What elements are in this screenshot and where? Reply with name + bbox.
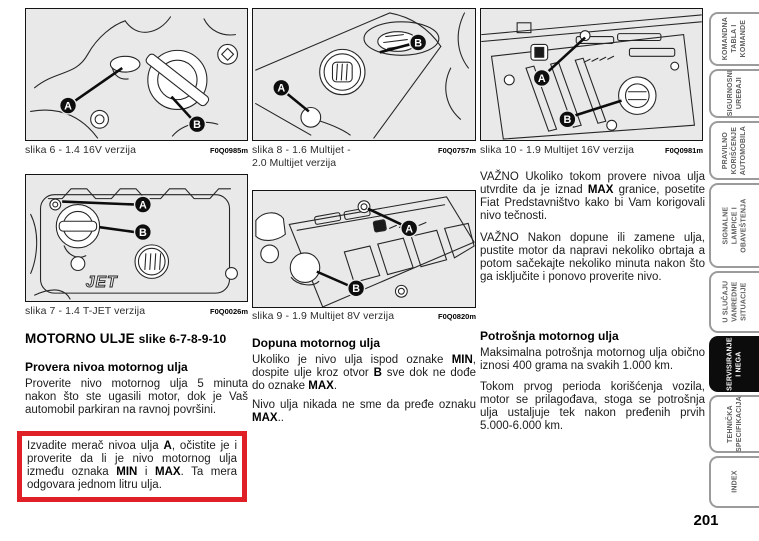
svg-text:A: A: [405, 223, 413, 235]
figure-caption: slika 6 - 1.4 16V verzija F0Q0985m: [25, 144, 248, 156]
sidebar-tab-signalne-lampice: SIGNALNE LAMPICE I OBAVEŠTENJA: [709, 183, 759, 268]
sidebar-tab-label: INDEX: [730, 471, 739, 493]
marker-a-icon: A: [533, 70, 550, 87]
marker-a-icon: A: [135, 196, 152, 213]
paragraph-important-1: VAŽNO Ukoliko tokom provere nivoa ulja u…: [480, 171, 705, 223]
engine-cover-label: JET: [86, 274, 118, 291]
paragraph-refill-1: Ukoliko je nivo ulja ispod oznake MIN, d…: [252, 354, 476, 393]
paragraph-consumption-2: Tokom prvog perioda korišćenja vozila, m…: [480, 381, 705, 433]
paragraph-consumption-1: Maksimalna potrošnja motornog ulja običn…: [480, 347, 705, 373]
figure-caption-text: slika 7 - 1.4 T-JET verzija: [25, 305, 145, 317]
engine-illustration-multijet-16v: A B: [481, 9, 702, 140]
paragraph-important-2: VAŽNO Nakon dopune ili zamene ulja, pust…: [480, 232, 705, 284]
paragraph-refill-2: Nivo ulja nikada ne sme da pređe oznaku …: [252, 399, 476, 425]
paragraph-check-oil: Proverite nivo motornog ulja 5 minuta na…: [25, 378, 248, 417]
figure-code: F0Q0981m: [665, 146, 703, 155]
sidebar-tab-servisiranje-i-nega: SERVISIRANJE I NEGA: [709, 336, 759, 392]
sidebar-tab-index: INDEX: [709, 456, 759, 508]
marker-b-icon: B: [559, 111, 576, 128]
figure-caption-text: slika 9 - 1.9 Multijet 8V verzija: [252, 310, 394, 322]
figure-slika-9: A B: [252, 190, 476, 308]
marker-b-icon: B: [410, 34, 427, 51]
sidebar-tab-label: KOMANDNA TABLA I KOMANDE: [721, 17, 748, 60]
svg-text:A: A: [139, 199, 147, 211]
heading-provera-nivoa: Provera nivoa motornog ulja: [25, 360, 248, 374]
heading-potrosnja: Potrošnja motornog ulja: [480, 329, 705, 343]
figure-caption-line2: 2.0 Multijet verzija: [252, 157, 476, 169]
sidebar-tab-label: TEHNIČKA SPECIFIKACIJA: [726, 396, 744, 452]
sidebar-tab-u-slucaju-vanredne: U SLUČAJU VANREDNE SITUACIJE: [709, 271, 759, 333]
figure-code: F0Q0820m: [438, 312, 476, 321]
section-title-motorno-ulje: MOTORNO ULJE slike 6-7-8-9-10: [25, 331, 248, 346]
engine-illustration-1-4-tjet: JET A B: [26, 175, 247, 301]
sidebar-tab-pravilno-koriscenje: PRAVILNO KORIŠĆENJE AUTOMOBILA: [709, 121, 759, 180]
figure-slika-7: JET A B: [25, 174, 248, 302]
figure-caption: slika 8 - 1.6 Multijet - F0Q0757m: [252, 144, 476, 156]
sidebar-tab-label: SIGURNOSNI UREĐAJI: [726, 70, 744, 116]
svg-text:B: B: [352, 283, 360, 295]
sidebar-tab-tehnicka-specifikacija: TEHNIČKA SPECIFIKACIJA: [709, 395, 759, 453]
svg-text:A: A: [538, 73, 546, 85]
manual-page: A B slika 6 - 1.4 16V verzija F0Q0985m: [0, 0, 759, 541]
sidebar-tab-label: PRAVILNO KORIŠĆENJE AUTOMOBILA: [721, 126, 748, 175]
figure-caption-text: slika 10 - 1.9 Multijet 16V verzija: [480, 144, 634, 156]
figure-code: F0Q0985m: [210, 146, 248, 155]
figure-caption: slika 9 - 1.9 Multijet 8V verzija F0Q082…: [252, 310, 476, 322]
section-title-main: MOTORNO ULJE: [25, 331, 135, 346]
highlighted-note-box: Izvadite merač nivoa ulja A, očistite je…: [17, 431, 247, 502]
svg-text:A: A: [277, 83, 285, 95]
figure-caption-text: slika 8 - 1.6 Multijet -: [252, 144, 351, 156]
page-number: 201: [686, 512, 726, 529]
svg-text:B: B: [139, 227, 147, 239]
figure-code: F0Q0757m: [438, 146, 476, 155]
sidebar-tab-label: SERVISIRANJE I NEGA: [726, 337, 744, 391]
svg-text:B: B: [414, 37, 422, 49]
svg-text:B: B: [563, 114, 571, 126]
figure-slika-8: A B: [252, 8, 476, 141]
figure-code: F0Q0026m: [210, 307, 248, 316]
sidebar-tab-label: SIGNALNE LAMPICE I OBAVEŠTENJA: [721, 198, 748, 252]
engine-illustration-multijet-8v: A B: [253, 191, 475, 307]
heading-dopuna: Dopuna motornog ulja: [252, 336, 476, 350]
marker-b-icon: B: [189, 116, 206, 133]
sidebar-tab-komandna-tabla: KOMANDNA TABLA I KOMANDE: [709, 12, 759, 66]
marker-b-icon: B: [135, 224, 152, 241]
engine-illustration-multijet: A B: [253, 9, 475, 140]
figure-caption: slika 7 - 1.4 T-JET verzija F0Q0026m: [25, 305, 248, 317]
marker-a-icon: A: [60, 97, 77, 114]
engine-illustration-1-4-16v: A B: [26, 9, 247, 140]
figure-caption: slika 10 - 1.9 Multijet 16V verzija F0Q0…: [480, 144, 703, 156]
sidebar-tab-sigurnosni-uredjaji: SIGURNOSNI UREĐAJI: [709, 69, 759, 118]
section-title-figure-refs: slike 6-7-8-9-10: [139, 332, 227, 346]
svg-text:B: B: [193, 119, 201, 131]
marker-b-icon: B: [348, 280, 365, 297]
svg-text:A: A: [64, 100, 72, 112]
marker-a-icon: A: [401, 220, 418, 237]
figure-slika-10: A B: [480, 8, 703, 141]
marker-a-icon: A: [273, 79, 290, 96]
figure-caption-text: slika 6 - 1.4 16V verzija: [25, 144, 136, 156]
sidebar-tab-label: U SLUČAJU VANREDNE SITUACIJE: [721, 281, 748, 323]
figure-slika-6: A B: [25, 8, 248, 141]
